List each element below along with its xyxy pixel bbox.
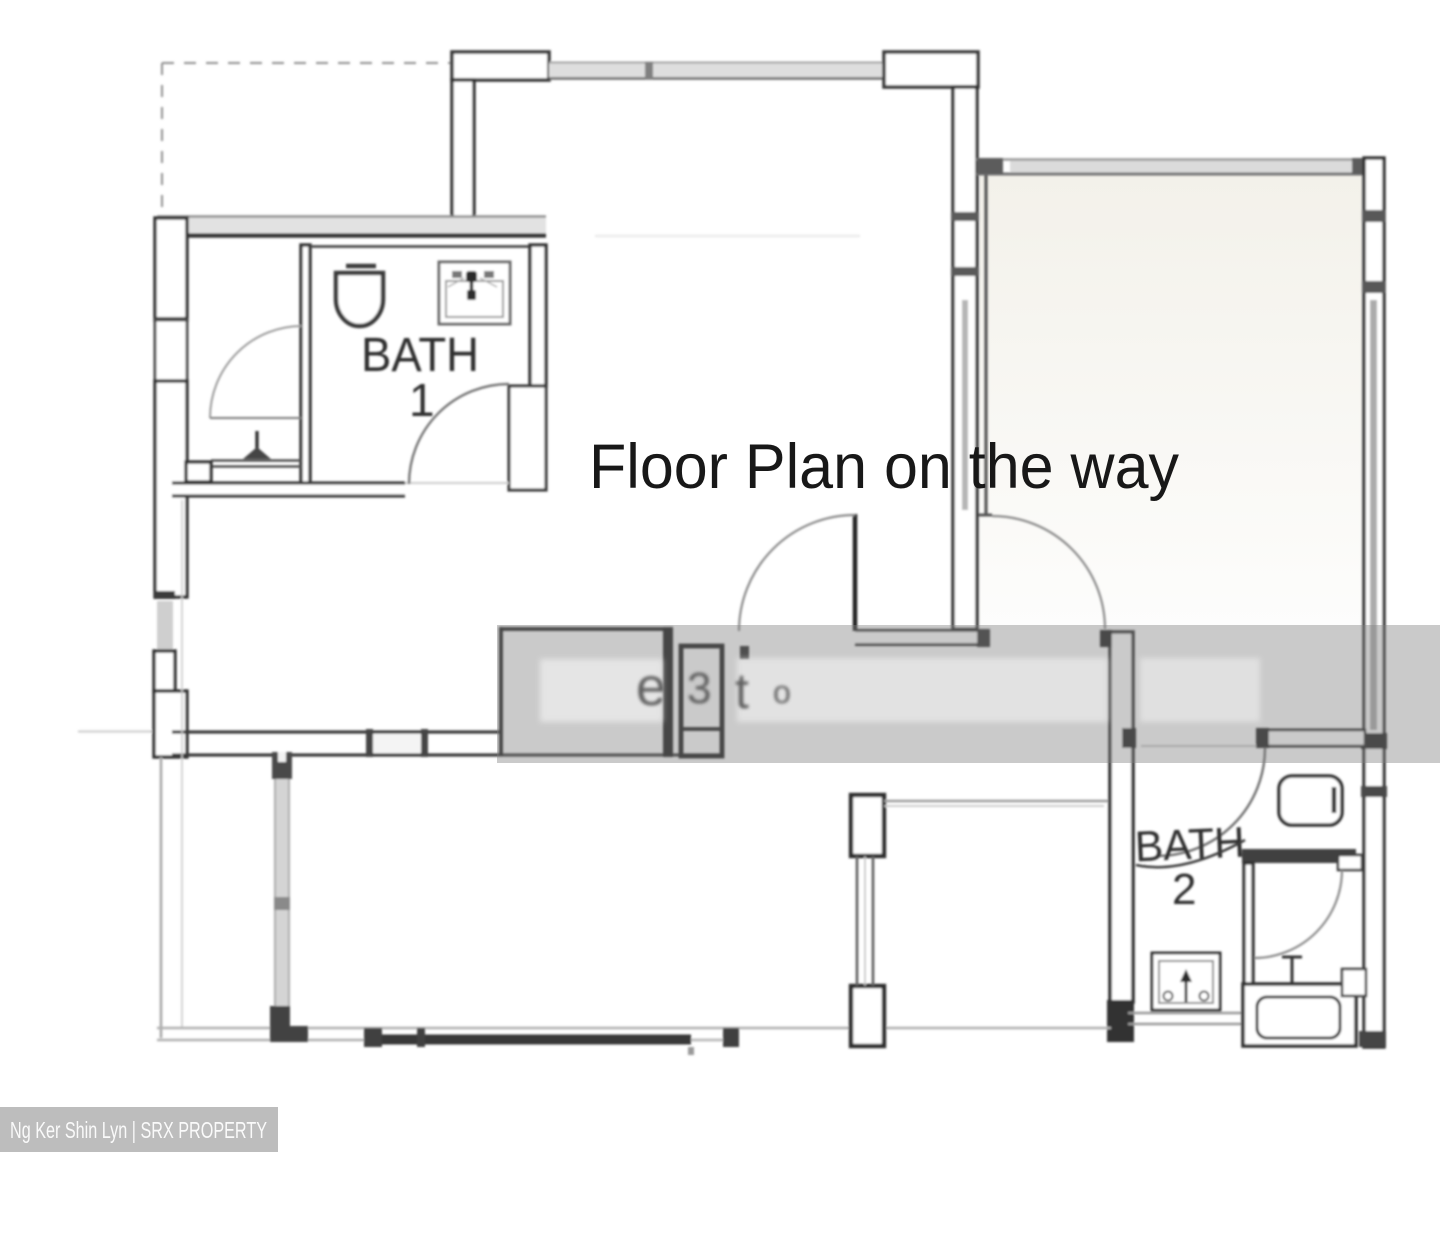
svg-text:1: 1 <box>409 374 435 426</box>
svg-text:o: o <box>773 674 791 710</box>
svg-text:e: e <box>636 657 666 717</box>
svg-text:Ng Ker Shin Lyn | SRX PROPERTY: Ng Ker Shin Lyn | SRX PROPERTY <box>10 1117 267 1143</box>
svg-text:2: 2 <box>1172 865 1196 914</box>
svg-text:Floor Plan on the way: Floor Plan on the way <box>589 432 1179 502</box>
svg-text:t: t <box>735 663 749 719</box>
svg-text:3: 3 <box>687 664 711 713</box>
